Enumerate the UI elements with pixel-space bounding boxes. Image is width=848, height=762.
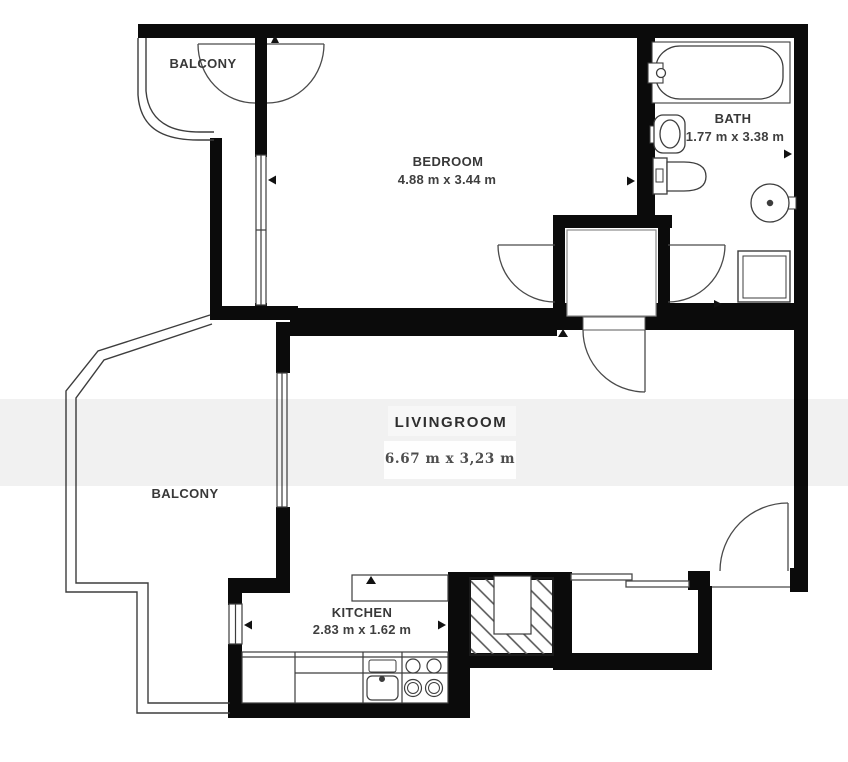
bath-label: BATH — [715, 111, 752, 126]
balcony-top-railing-inner — [146, 38, 214, 132]
balcony-left-railing-inner — [76, 324, 230, 703]
balcony-top-railing-outer — [138, 38, 214, 140]
arrow-bedroom-right — [627, 177, 635, 186]
wall-entry-post — [688, 571, 710, 590]
wall-storage-bottom — [553, 653, 712, 670]
bath-hall-door — [668, 245, 725, 302]
wall-corner-bottom-right — [790, 568, 808, 592]
boiler — [751, 184, 796, 222]
wall-hall-right — [658, 228, 670, 308]
hall-floor — [567, 230, 656, 316]
wall-kitchen-right — [448, 572, 470, 718]
bedroom-hall-door — [498, 245, 555, 302]
kitchen-fixtures — [242, 575, 448, 703]
shaft-duct — [494, 576, 531, 634]
arrow-hall-door — [558, 329, 568, 337]
sliding-door — [571, 574, 689, 587]
balcony-door-left-leaf — [198, 44, 255, 103]
wall-kitchen-left-upper — [228, 593, 242, 605]
kitchen-label: KITCHEN — [332, 605, 393, 620]
wall-right — [794, 24, 808, 592]
upper-cabinet — [352, 575, 448, 601]
livingroom-dimensions: 6.67 m x 3,23 m — [385, 451, 515, 467]
wall-storage-right — [698, 586, 712, 670]
washbasin — [650, 115, 685, 153]
balcony-door-right-leaf — [267, 44, 324, 103]
artifact-band — [0, 399, 848, 486]
balcony-left-label: BALCONY — [151, 486, 218, 501]
wall-livingroom-left-upper — [276, 322, 290, 373]
hall-door-threshold — [583, 317, 645, 330]
ventilation-shaft — [470, 576, 553, 655]
toilet — [653, 158, 706, 194]
hall-livingroom-door — [583, 330, 645, 392]
kitchen-window — [229, 604, 242, 644]
arrow-kitchen-right — [438, 621, 446, 630]
arrow-kitchen-left — [244, 621, 252, 630]
wall-bath-bottom — [672, 303, 794, 330]
bedroom-dimensions: 4.88 m x 3.44 m — [398, 172, 496, 187]
shower-cabinet — [738, 251, 790, 302]
wall-top — [138, 24, 808, 38]
bedroom-window — [256, 155, 266, 305]
arrow-bath-right — [784, 150, 792, 159]
wall-livingroom-corner — [228, 578, 290, 593]
kitchen-sink — [367, 660, 398, 700]
floor-plan: BALCONY BEDROOM 4.88 m x 3.44 m BATH 1.7… — [0, 0, 848, 762]
bedroom-label: BEDROOM — [413, 154, 484, 169]
bathtub — [648, 42, 790, 103]
kitchen-dimensions: 2.83 m x 1.62 m — [313, 622, 411, 637]
balcony-railings — [66, 38, 230, 713]
wall-hall-left — [553, 228, 565, 308]
arrow-bedroom-left — [268, 176, 276, 185]
wall-exterior-left — [210, 138, 222, 318]
livingroom-label: LIVINGROOM — [395, 414, 508, 431]
entrance-door — [712, 503, 790, 587]
wall-balcony-bedroom — [255, 38, 267, 157]
hall — [567, 230, 656, 330]
balcony-top-label: BALCONY — [169, 56, 236, 71]
bath-dimensions: 1.77 m x 3.38 m — [686, 129, 784, 144]
wall-bedroom-livingroom — [290, 308, 557, 336]
wall-kitchen-bottom — [228, 702, 460, 718]
wall-balcony-top — [210, 306, 298, 320]
